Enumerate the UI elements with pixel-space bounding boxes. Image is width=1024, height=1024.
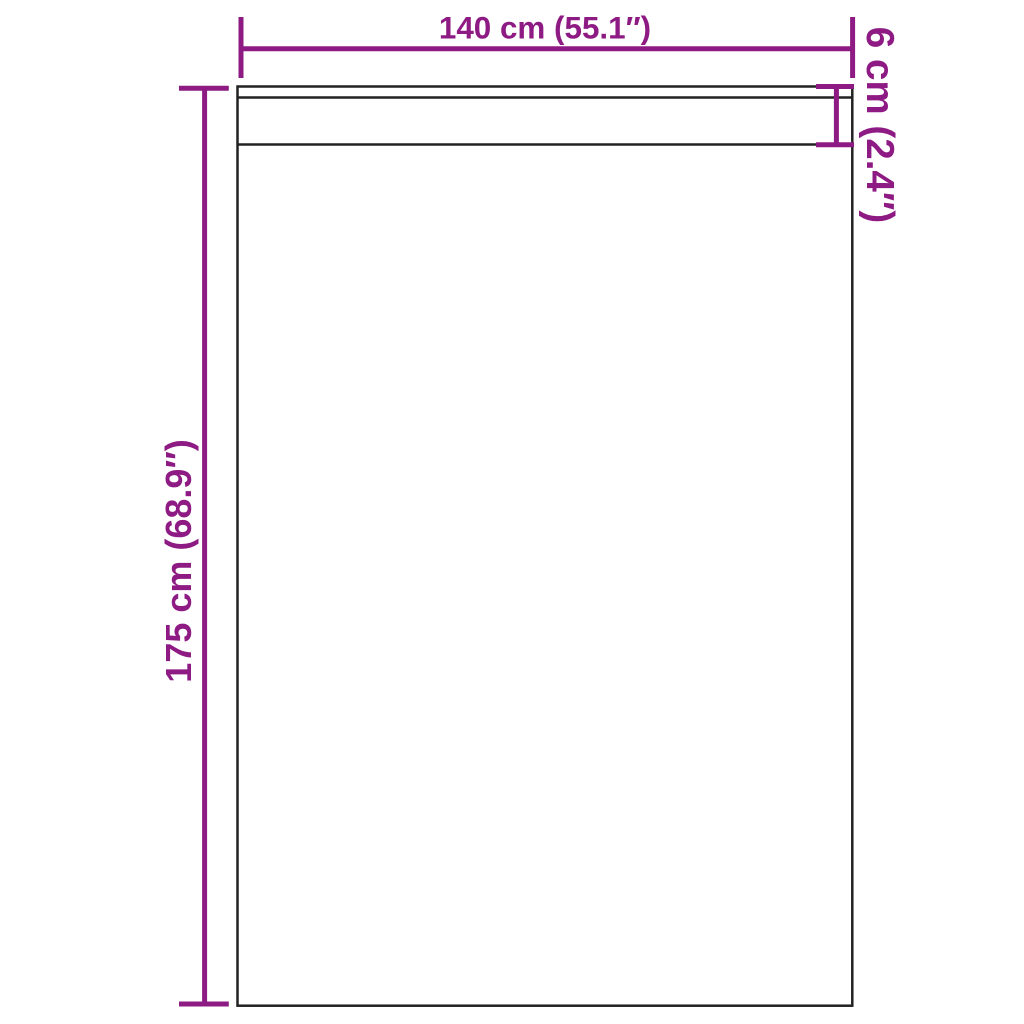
svg-text:6 cm (2.4″): 6 cm (2.4″) (858, 27, 901, 223)
svg-text:175 cm (68.9″): 175 cm (68.9″) (158, 439, 199, 682)
svg-text:140 cm (55.1″): 140 cm (55.1″) (439, 10, 651, 45)
